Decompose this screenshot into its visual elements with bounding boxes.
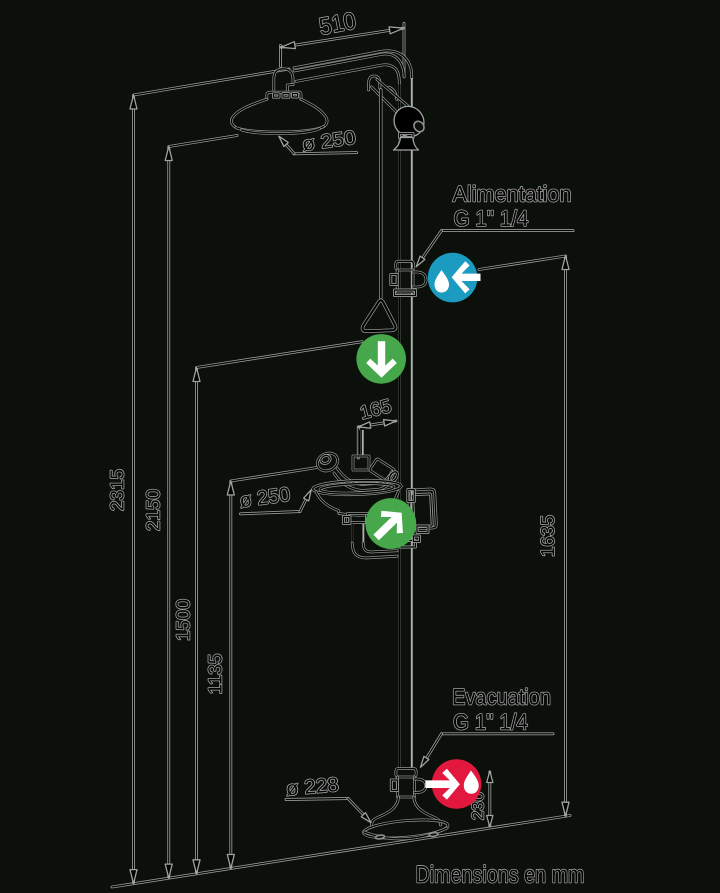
- svg-text:Evacuation: Evacuation: [452, 685, 551, 710]
- svg-text:G 1" 1/4: G 1" 1/4: [454, 206, 529, 231]
- svg-text:G 1" 1/4: G 1" 1/4: [453, 710, 528, 735]
- svg-text:Alimentation: Alimentation: [453, 182, 572, 207]
- svg-text:1500: 1500: [174, 599, 195, 641]
- svg-text:1135: 1135: [206, 654, 227, 695]
- svg-text:1635: 1635: [538, 515, 559, 557]
- svg-text:Dimensions en mm: Dimensions en mm: [416, 862, 585, 889]
- svg-text:ø 228: ø 228: [285, 774, 340, 801]
- svg-text:2315: 2315: [108, 469, 129, 511]
- svg-text:2150: 2150: [144, 489, 165, 531]
